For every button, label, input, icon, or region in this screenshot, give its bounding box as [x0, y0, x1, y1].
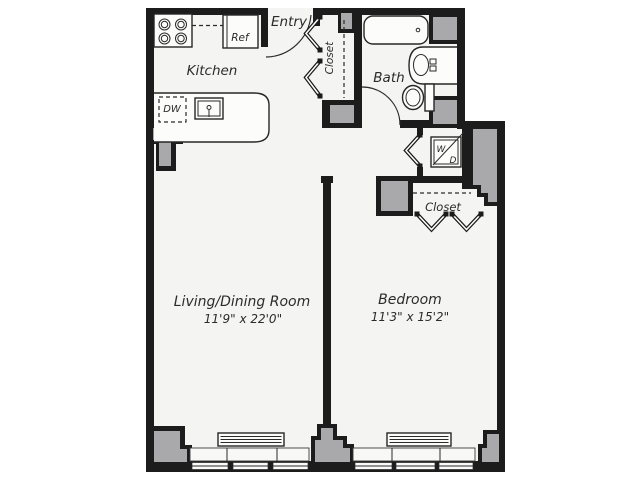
- label-dryer: D: [450, 156, 457, 166]
- bathtub-icon: [364, 16, 428, 44]
- radiator-icon: [218, 433, 284, 446]
- floor-plan: Entry Kitchen Bath Closet Closet Ref DW …: [0, 0, 640, 480]
- column-bath-top: [433, 17, 457, 40]
- toilet-icon: [403, 84, 435, 111]
- label-washer: W: [437, 145, 447, 155]
- radiator-icon: [387, 433, 451, 446]
- stove-icon: [154, 14, 192, 47]
- wall-bath-bottom: [400, 120, 433, 128]
- label-bath: Bath: [373, 70, 404, 86]
- column-entry-bottom: [330, 105, 354, 123]
- label-living-room-dims: 11'9" x 22'0": [204, 312, 282, 326]
- column-closet-left: [381, 181, 408, 211]
- label-living-room: Living/Dining Room: [174, 294, 310, 310]
- label-refrigerator: Ref: [231, 32, 251, 44]
- vanity-sink-icon: [409, 47, 457, 84]
- label-bedroom-dims: 11'3" x 15'2": [371, 310, 449, 324]
- label-kitchen: Kitchen: [187, 63, 238, 79]
- column-bath-bottom: [433, 100, 457, 124]
- label-entry: Entry: [271, 14, 308, 30]
- label-bedroom: Bedroom: [378, 292, 442, 308]
- sink-icon: [195, 98, 223, 119]
- column-entry-top: [341, 13, 352, 29]
- wall-closet-bath-divider: [354, 8, 362, 103]
- wall-entry-jamb: [261, 8, 268, 47]
- window-sill: [190, 448, 309, 461]
- floor-plan-canvas: Entry Kitchen Bath Closet Closet Ref DW …: [0, 0, 640, 480]
- wall-left: [146, 8, 154, 472]
- label-dishwasher: DW: [163, 104, 182, 115]
- label-bedroom-closet: Closet: [425, 200, 461, 214]
- label-entry-closet: Closet: [324, 41, 336, 75]
- window-sill: [353, 448, 475, 461]
- wall-room-divider: [323, 176, 331, 428]
